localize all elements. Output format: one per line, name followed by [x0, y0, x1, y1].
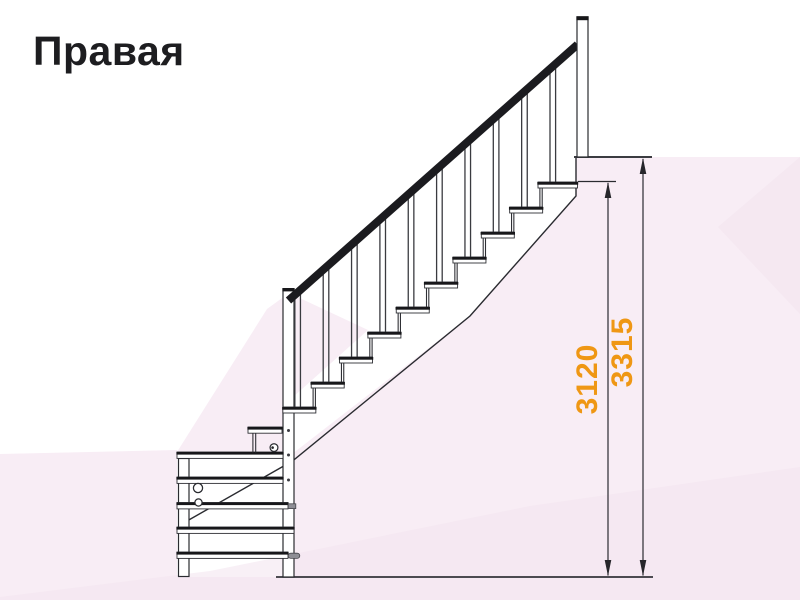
staircase-elevation-svg: 3120 3315 — [0, 0, 800, 600]
bolt-dot — [287, 479, 290, 482]
top-newel-post — [576, 16, 588, 157]
bolt-hole — [270, 444, 278, 452]
bolt-dot — [287, 454, 290, 457]
dimension-3315-label: 3315 — [606, 317, 639, 388]
dimension-3120-label: 3120 — [571, 344, 604, 415]
top-newel-cap — [576, 16, 588, 20]
bolt-hole — [193, 483, 202, 492]
page-title: Правая — [33, 28, 185, 75]
bolt-dot — [287, 429, 290, 432]
staircase-diagram-page: 3120 3315 — [0, 0, 800, 600]
background — [0, 0, 800, 600]
tread-end-cap — [288, 553, 300, 558]
tread-end-cap — [288, 504, 296, 509]
bottom-newel-cap — [282, 288, 294, 291]
bolt-hole — [195, 499, 202, 506]
bolt-dot — [271, 446, 274, 449]
